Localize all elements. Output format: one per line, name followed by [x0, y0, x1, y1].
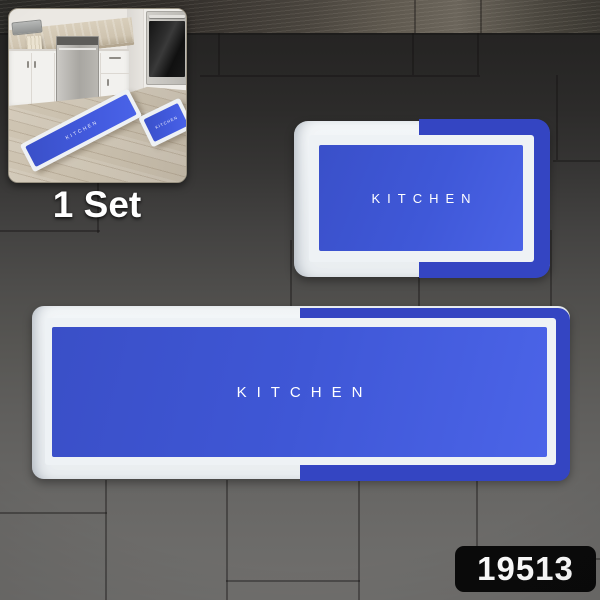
grout-line: [105, 480, 107, 600]
product-code: 19513: [477, 550, 574, 588]
grout-line: [200, 75, 480, 77]
grout-line: [476, 480, 478, 546]
grout-line: [226, 580, 360, 582]
dishwasher-control-panel: [57, 37, 98, 45]
grout-line: [550, 230, 552, 307]
grout-line: [218, 33, 220, 75]
drawer-handle: [109, 57, 121, 59]
mat-label: KITCHEN: [154, 115, 178, 130]
grout-line: [553, 160, 600, 162]
grout-line: [477, 33, 479, 75]
dishwasher-handle: [59, 48, 96, 50]
grout-line: [418, 277, 420, 307]
grout-line: [414, 0, 416, 33]
grout-line: [0, 512, 107, 514]
cabinet-handle: [27, 61, 29, 68]
product-code-badge: 19513: [455, 546, 596, 592]
grout-line: [412, 33, 414, 75]
drawer-divider: [101, 73, 129, 74]
grout-line: [290, 240, 292, 307]
grout-line: [226, 480, 228, 600]
mat-label: KITCHEN: [371, 191, 477, 206]
oven-handle: [149, 15, 185, 18]
mat-blue-center: KITCHEN: [52, 327, 547, 457]
cabinet-handle: [107, 79, 109, 86]
mat-blue-center: KITCHEN: [319, 145, 523, 251]
mat-label: KITCHEN: [237, 384, 373, 401]
inset-photo: KITCHEN KITCHEN: [8, 8, 187, 183]
grout-line: [556, 75, 558, 160]
grout-line: [358, 480, 360, 600]
grout-line: [480, 0, 482, 33]
grout-line: [0, 230, 100, 232]
product-image: KITCHEN KITCHEN 1 Set KITCHEN KITCHEN 19…: [0, 0, 600, 600]
cabinet-handle: [34, 61, 36, 68]
large-kitchen-mat: KITCHEN: [32, 306, 570, 479]
oven-door-glass: [149, 21, 185, 77]
small-kitchen-mat: KITCHEN: [294, 121, 550, 277]
set-count-label: 1 Set: [27, 186, 167, 225]
mat-label: KITCHEN: [65, 119, 100, 141]
